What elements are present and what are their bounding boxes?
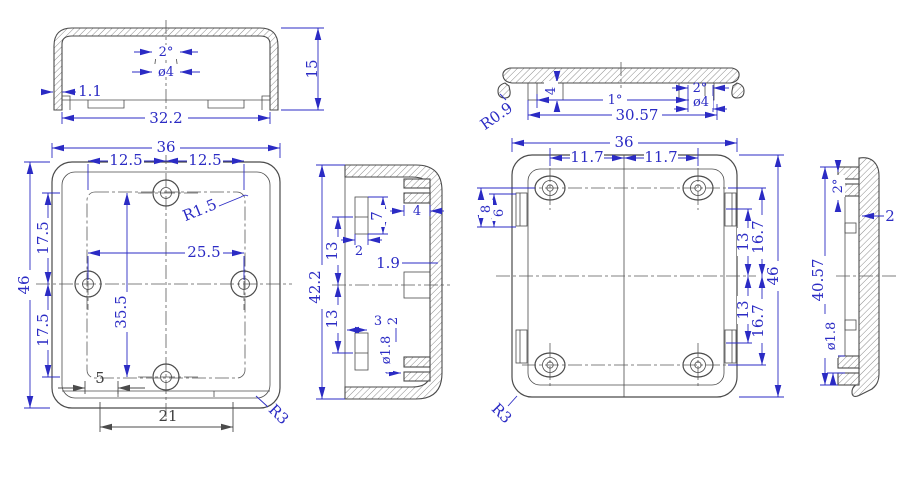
technical-drawing: 2° ø4 1.1 32.2 15 bbox=[0, 0, 900, 500]
dim-label-tab-length: 6 bbox=[492, 209, 507, 217]
dim-label-height: 15 bbox=[303, 59, 321, 78]
dim-label-overall-width: 36 bbox=[614, 133, 633, 151]
dim-label-wall-thickness: 2 bbox=[885, 207, 895, 225]
dim-label-notch-width: 21 bbox=[158, 407, 177, 425]
dim-label-inner-width: 32.2 bbox=[149, 109, 182, 127]
dim-label-boss-diameter: ø4 bbox=[158, 65, 174, 80]
dim-label-hole-offset-bottom: 17.5 bbox=[34, 313, 52, 346]
dim-label-boss-width: 2 bbox=[386, 317, 401, 325]
dim-label-inner-height: 42.2 bbox=[306, 270, 324, 303]
dim-label-boss-offset-bottom: 13 bbox=[323, 309, 341, 328]
dim-label-boss-draft: 2° bbox=[693, 81, 708, 96]
dim-label-boss-offset-top: 13 bbox=[323, 241, 341, 260]
dim-label-pin-hole: ø1.8 bbox=[824, 322, 839, 351]
dim-label-slot-height: 7 bbox=[368, 211, 386, 221]
drawing-canvas: 2° ø4 1.1 32.2 15 bbox=[0, 0, 900, 500]
dim-label-inner-width: 30.57 bbox=[616, 106, 659, 124]
dim-label-hole-offset-top: 17.5 bbox=[34, 221, 52, 254]
dim-label-slot-width: 2 bbox=[355, 244, 363, 259]
dim-label-boss-depth: 3 bbox=[374, 314, 382, 329]
dim-label-pin-hole: ø1.8 bbox=[379, 336, 394, 365]
dim-label-rim-height: 4 bbox=[544, 87, 559, 95]
dim-label-hole-offset-left: 12.5 bbox=[109, 151, 142, 169]
dim-label-draft-angle: 2° bbox=[831, 179, 846, 194]
dim-label-hole-offset-right: 12.5 bbox=[188, 151, 221, 169]
dim-label-wall-thickness: 1.9 bbox=[376, 254, 400, 272]
dim-label-hole-span-h: 25.5 bbox=[187, 243, 220, 261]
dim-label-hole-offset-left: 11.7 bbox=[570, 148, 603, 166]
dim-label-hole-span-v: 35.5 bbox=[112, 295, 130, 328]
dim-label-hole-offset-right: 11.7 bbox=[644, 148, 677, 166]
dim-label-inner-height: 40.57 bbox=[809, 259, 827, 302]
dim-label-notch-offset: 5 bbox=[95, 369, 105, 387]
dim-label-overall-height: 46 bbox=[15, 275, 33, 294]
dim-label-hole-offset-top: 16.7 bbox=[749, 220, 767, 253]
dim-label-boss-diameter: ø4 bbox=[693, 95, 709, 110]
dim-label-overall-width: 36 bbox=[156, 138, 175, 156]
dim-label-draft-angle: 2° bbox=[159, 45, 174, 60]
dim-label-wall-thickness: 1.1 bbox=[78, 82, 102, 100]
dim-label-rib-width: 4 bbox=[413, 204, 421, 219]
dim-label-hole-offset-bottom: 16.7 bbox=[749, 304, 767, 337]
dim-label-overall-height: 46 bbox=[764, 266, 782, 285]
